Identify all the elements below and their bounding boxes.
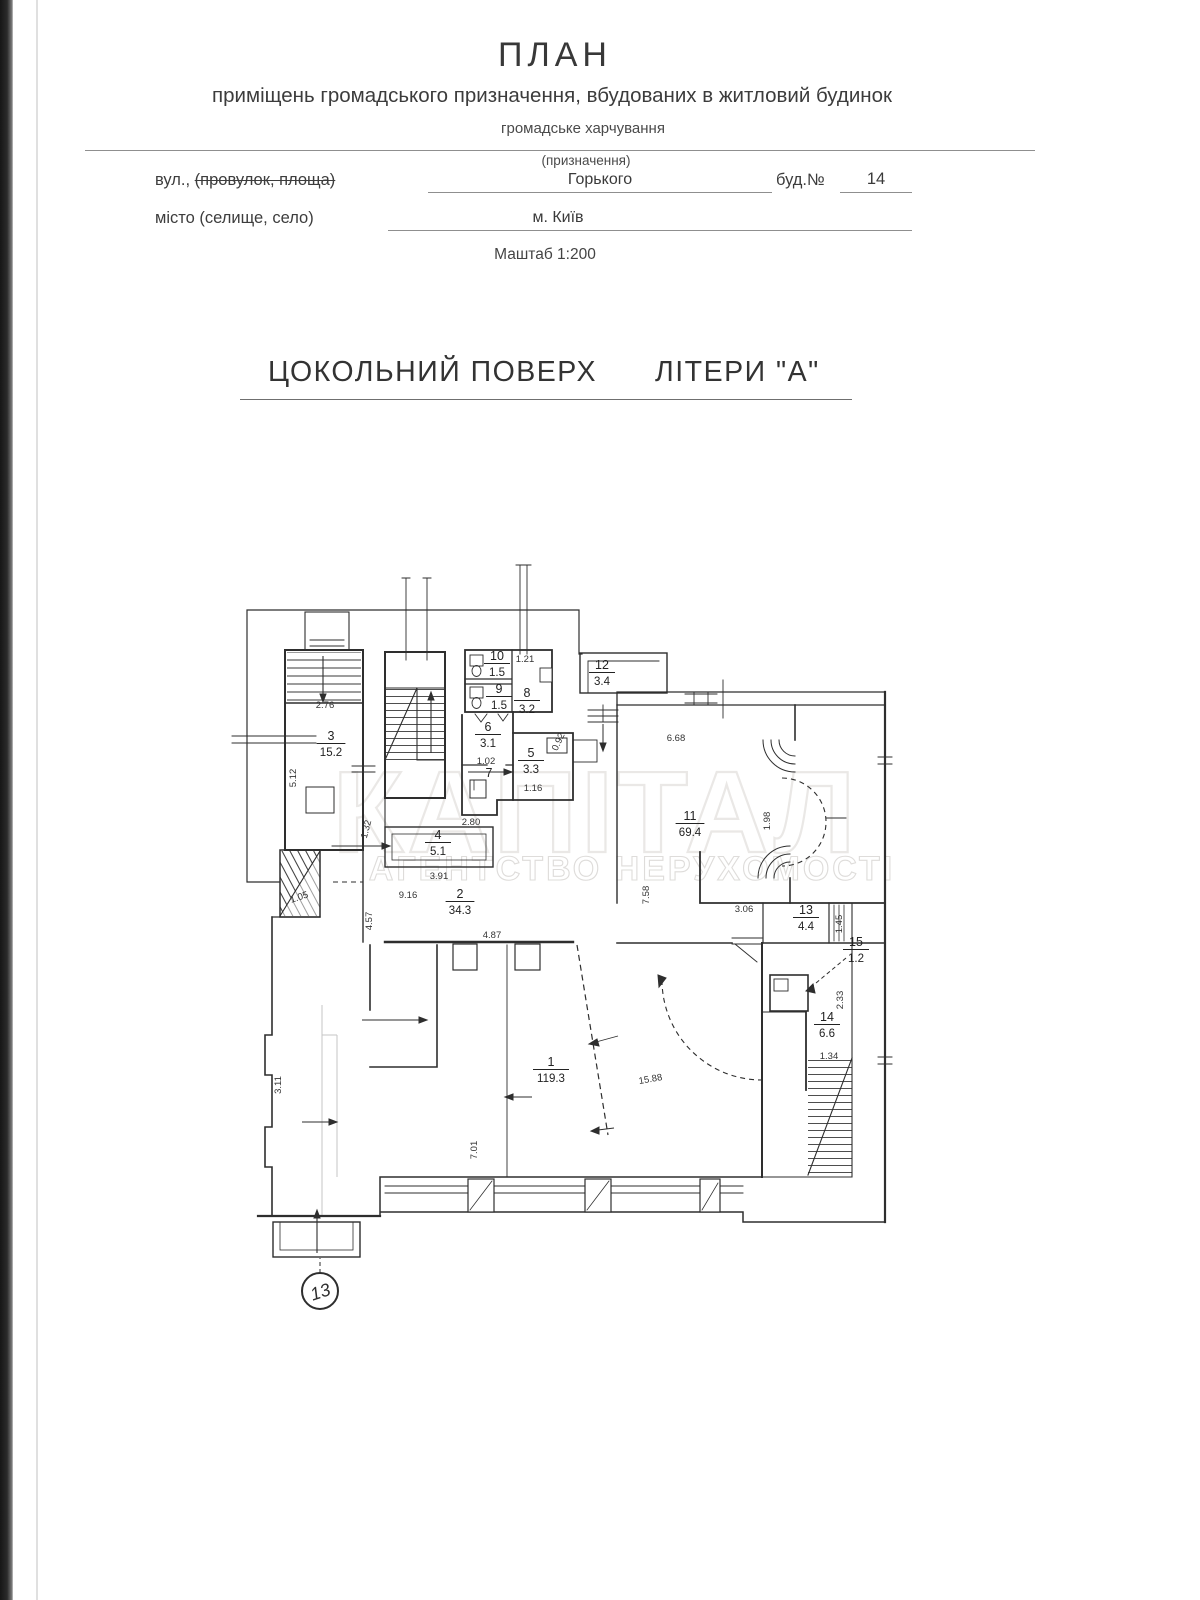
dimension-text: 2.76 bbox=[316, 700, 335, 711]
dimension-text: 6.68 bbox=[667, 733, 686, 744]
dimension-text: 3.11 bbox=[273, 1076, 284, 1094]
room-number: 2 bbox=[457, 887, 464, 901]
floor-plan-drawing: КАПІТАЛ АГЕНТСТВО НЕРУХОМОСТІ bbox=[0, 0, 1200, 1600]
dimension-text: 3.06 bbox=[735, 904, 754, 915]
room-area: 119.3 bbox=[537, 1073, 565, 1085]
room-area: 3.1 bbox=[480, 738, 496, 750]
room-number: 7 bbox=[486, 766, 493, 780]
room-area: 1.5 bbox=[489, 667, 505, 679]
dimension-text: 1.45 bbox=[834, 915, 845, 934]
faint-pencil-lines bbox=[322, 1005, 337, 1216]
dimension-text: 5.12 bbox=[288, 769, 299, 788]
room-number: 5 bbox=[528, 746, 535, 760]
watermark-tagline: АГЕНТСТВО НЕРУХОМОСТІ bbox=[369, 850, 895, 888]
room-area: 4.4 bbox=[798, 921, 815, 933]
dimension-text: 2.80 bbox=[462, 817, 481, 828]
room-area: 34.3 bbox=[449, 905, 471, 917]
dimension-text: 1.21 bbox=[516, 654, 535, 665]
dimension-text: 7.01 bbox=[469, 1141, 480, 1160]
room-area: 3.4 bbox=[594, 676, 611, 688]
room-number: 14 bbox=[820, 1010, 834, 1024]
dimension-text: 2.33 bbox=[835, 991, 846, 1010]
room-number: 4 bbox=[435, 828, 442, 842]
dimension-text: 1.98 bbox=[762, 812, 773, 831]
entry-marker-number: 13 bbox=[308, 1279, 333, 1304]
room-number: 11 bbox=[684, 809, 697, 823]
room-area: 3.3 bbox=[523, 764, 539, 776]
dimension-text: 9.16 bbox=[399, 890, 418, 901]
room-area: 69.4 bbox=[679, 827, 702, 839]
dimension-text: 1.16 bbox=[524, 783, 543, 794]
dimension-text: 3.91 bbox=[430, 871, 449, 882]
room-number: 9 bbox=[496, 682, 503, 696]
room-number: 15 bbox=[849, 935, 863, 949]
room-number: 6 bbox=[485, 720, 492, 734]
room-area: 15.2 bbox=[320, 747, 342, 759]
room-number: 13 bbox=[799, 903, 813, 917]
entry-marker: 13 bbox=[302, 1273, 338, 1309]
dimension-text: 15.88 bbox=[638, 1072, 663, 1087]
room-number: 12 bbox=[595, 658, 609, 672]
room-area: 1.5 bbox=[491, 700, 507, 712]
room-area: 5.1 bbox=[430, 846, 446, 858]
room-area: 3.2 bbox=[519, 704, 535, 716]
room-number: 3 bbox=[328, 729, 335, 743]
room-area: 6.6 bbox=[819, 1028, 835, 1040]
room-number: 10 bbox=[490, 649, 504, 663]
dimension-text: 4.57 bbox=[364, 912, 375, 931]
dimension-text: 1.34 bbox=[820, 1051, 839, 1062]
dimension-text: 4.87 bbox=[483, 930, 502, 941]
room-number: 8 bbox=[524, 686, 531, 700]
room-number: 1 bbox=[548, 1055, 555, 1069]
dimension-text: 7.58 bbox=[641, 886, 652, 905]
dimension-text: 1.02 bbox=[477, 756, 496, 767]
room-area: 1.2 bbox=[848, 953, 864, 965]
